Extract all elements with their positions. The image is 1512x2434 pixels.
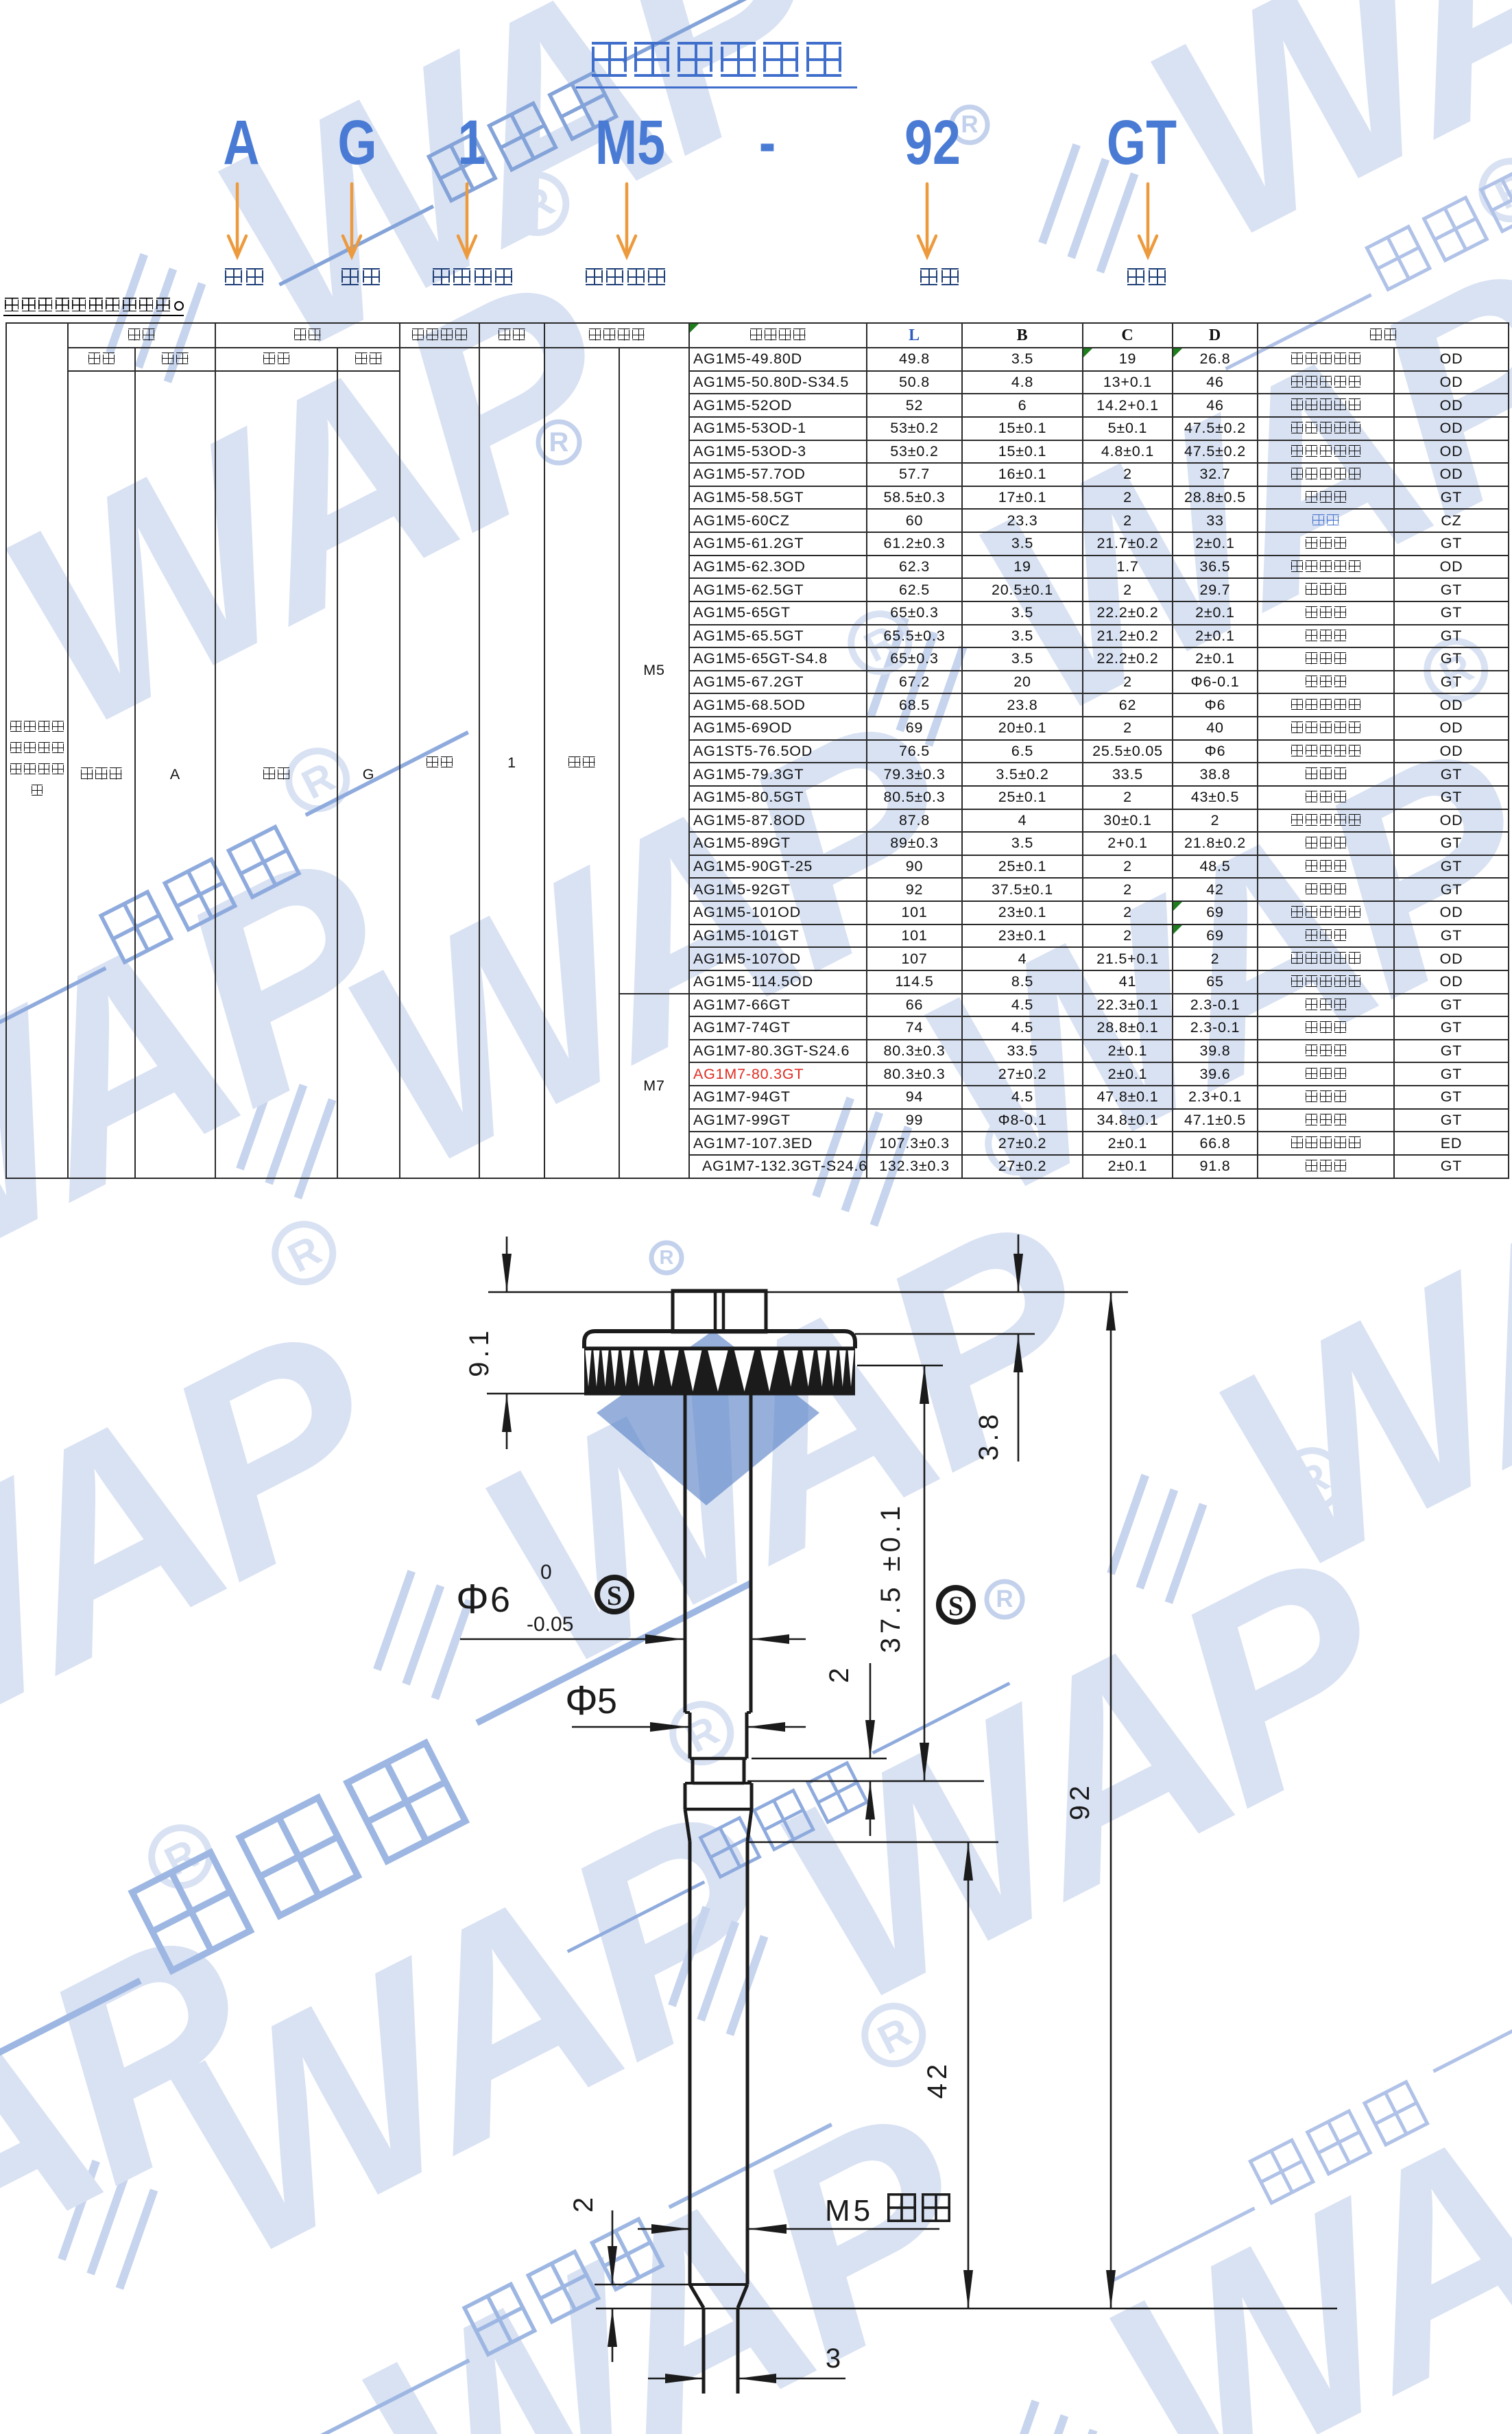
svg-text:-0.05: -0.05 [527,1613,573,1636]
svg-text:42: 42 [922,2060,952,2099]
svg-text:Φ: Φ [456,1576,489,1622]
svg-text:2: 2 [824,1664,854,1683]
svg-text:2: 2 [568,2193,599,2212]
svg-text:S: S [607,1580,622,1611]
svg-text:92: 92 [1065,1782,1095,1821]
svg-text:5: 5 [597,1682,617,1721]
svg-text:M5: M5 [825,2194,874,2228]
svg-text:0: 0 [540,1561,552,1584]
svg-text:6: 6 [490,1580,510,1620]
svg-text:9.1: 9.1 [464,1326,494,1377]
svg-text:3.8: 3.8 [974,1410,1004,1461]
svg-text:Φ: Φ [565,1678,598,1723]
svg-text:3: 3 [826,2343,841,2374]
svg-text:37.5 ±0.1: 37.5 ±0.1 [876,1502,906,1654]
svg-text:S: S [948,1590,963,1621]
